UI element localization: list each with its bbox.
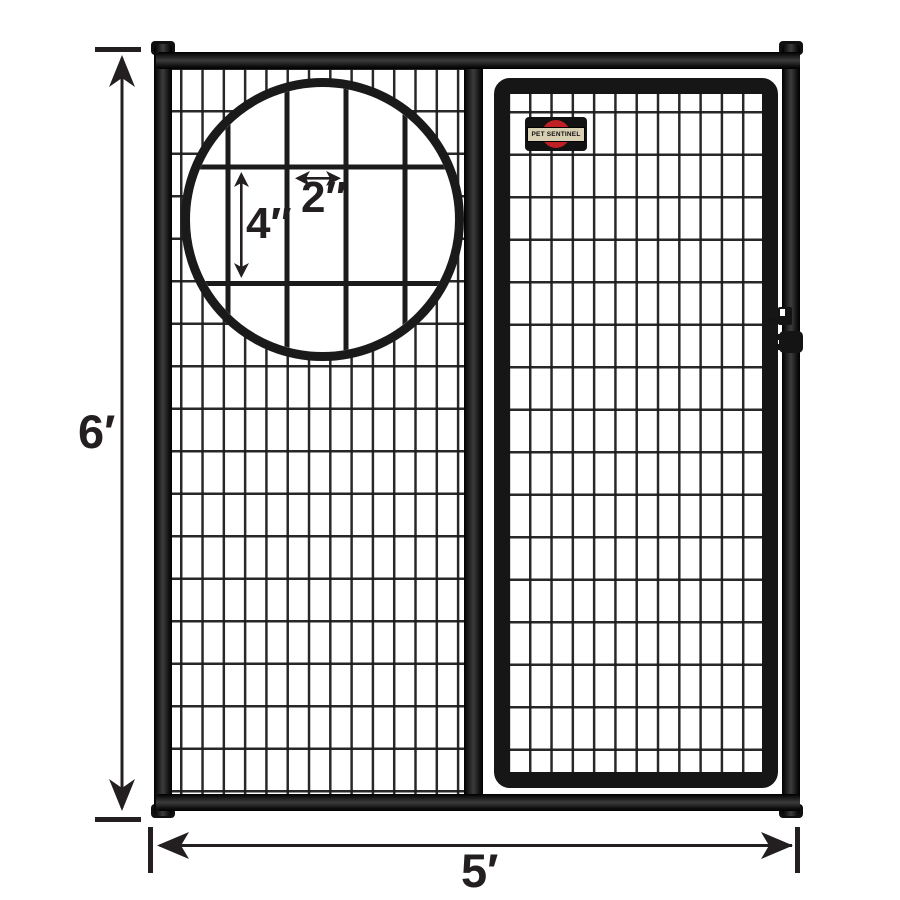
frame-left-post [154,44,172,816]
frame-top-rail [156,52,800,69]
gate-latch-body [779,331,803,353]
frame-right-post [782,44,800,816]
gate-latch-bump [776,344,780,350]
gate-latch-bump [776,334,780,340]
kennel-panel-diagram: 6′ 5′ PET SENTINEL [0,0,900,900]
frame-center-post [464,52,483,811]
brand-badge-band: PET SENTINEL [527,127,585,142]
width-dimension-label: 5′ [461,847,498,894]
brand-badge-label: PET SENTINEL [532,131,581,138]
brand-badge: PET SENTINEL [525,117,587,151]
height-dimension-label: 6′ [78,408,115,455]
gate-frame [494,78,778,788]
gate-latch-pin [768,318,781,324]
mesh-width-label: 2″ [301,176,347,220]
gate-latch-notch [780,309,785,316]
frame-bottom-rail [156,794,800,811]
mesh-height-label: 4″ [246,202,292,246]
